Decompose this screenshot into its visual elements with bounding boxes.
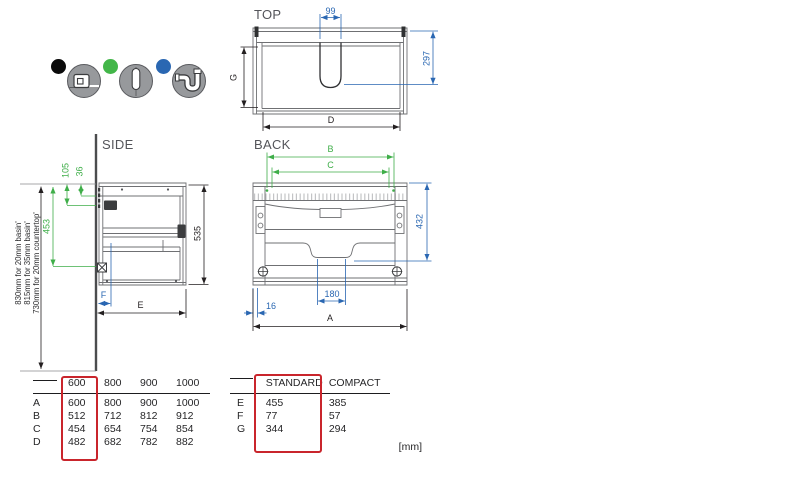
dim-36-label: 36 xyxy=(75,157,86,187)
top-view-title: TOP xyxy=(254,7,281,22)
highlight-standard-column xyxy=(254,374,322,453)
side-view-cabinet-outline xyxy=(99,183,186,285)
dim-G-label: G xyxy=(229,63,240,93)
top-view-wall-bracket-right xyxy=(402,27,406,38)
dim-B-label: B xyxy=(316,144,346,155)
dim-180-label: 180 xyxy=(317,289,347,300)
units-label: [mm] xyxy=(388,441,422,453)
column-header: 800 xyxy=(104,377,140,390)
drawer-runner-bracket xyxy=(178,225,186,239)
table-cell: 294 xyxy=(329,423,392,436)
dim-E-label: E xyxy=(126,300,156,311)
dim-105-label: 105 xyxy=(61,156,72,186)
tape-measure-icon xyxy=(67,64,101,98)
install-height-note: 830mm for 20mm basin' xyxy=(14,178,23,348)
install-height-note: 730mm for 20mm countertop' xyxy=(32,178,41,348)
install-height-notes: 830mm for 20mm basin' 815mm for 35mm bas… xyxy=(14,178,42,348)
top-view-cabinet-outline xyxy=(253,28,407,114)
dim-F-label: F xyxy=(89,290,119,301)
table-cell: 812 xyxy=(140,410,176,423)
table-cell: 712 xyxy=(104,410,140,423)
table-cell: 754 xyxy=(140,423,176,436)
highlight-600-column xyxy=(61,376,98,461)
drawer-runner-block xyxy=(104,201,117,211)
dim-D-label: D xyxy=(316,115,346,126)
dim-C-extensions xyxy=(272,168,389,189)
vanity-spec-sheet: TOP SIDE BACK 99 297 G D 105 36 453 535 … xyxy=(0,0,800,500)
dim-99-extensions xyxy=(320,14,438,85)
column-header: 900 xyxy=(140,377,176,390)
dim-16-label: 16 xyxy=(256,301,286,312)
table-cell: 654 xyxy=(104,423,140,436)
plumbing-color-dot xyxy=(156,59,171,74)
table-header-rule xyxy=(33,393,210,394)
top-view-siphon-cutout xyxy=(320,43,341,88)
fixing-dim-connectors xyxy=(53,196,96,267)
install-height-note: 815mm for 35mm basin' xyxy=(23,178,32,348)
table-cell: 800 xyxy=(104,397,140,410)
table-cell: 882 xyxy=(176,436,212,449)
top-view-wall-bracket-left xyxy=(255,27,259,38)
dim-297-label: 297 xyxy=(422,44,433,74)
dim-535-label: 535 xyxy=(193,219,204,249)
fixings-color-dot xyxy=(103,59,118,74)
column-header: 1000 xyxy=(176,377,212,390)
table-cell: 57 xyxy=(329,410,392,423)
runner-wheels xyxy=(258,266,403,277)
screw-icon xyxy=(119,64,153,98)
dim-C-label: C xyxy=(316,160,346,171)
side-view-title: SIDE xyxy=(102,137,134,152)
dimensions-color-dot xyxy=(51,59,66,74)
center-bracket xyxy=(320,209,341,218)
table-cell: 900 xyxy=(140,397,176,410)
dim-G-extensions xyxy=(241,47,259,108)
column-header: COMPACT xyxy=(329,377,392,390)
table-cell: 1000 xyxy=(176,397,212,410)
siphon-trap-icon xyxy=(172,64,206,98)
table-cell: 682 xyxy=(104,436,140,449)
table-cell: 385 xyxy=(329,397,392,410)
dim-432-label: 432 xyxy=(415,207,426,237)
dim-99-label: 99 xyxy=(316,6,346,17)
side-view-drawing xyxy=(20,134,209,371)
table-cell: 782 xyxy=(140,436,176,449)
table-cell: 854 xyxy=(176,423,212,436)
top-view-drawing xyxy=(241,14,439,131)
fixing-dots xyxy=(266,189,395,192)
dim-A-label: A xyxy=(315,313,345,324)
back-view-title: BACK xyxy=(254,137,291,152)
dim-453-label: 453 xyxy=(42,212,53,242)
table-cell: 912 xyxy=(176,410,212,423)
